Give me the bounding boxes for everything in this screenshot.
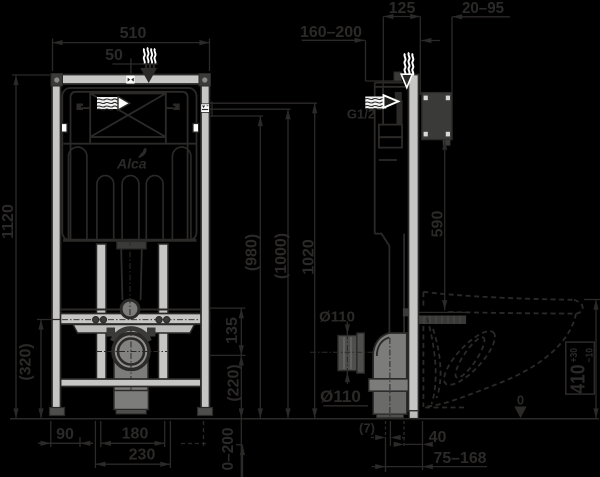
svg-text:+30: +30 — [569, 348, 580, 363]
svg-text:125: 125 — [389, 0, 416, 17]
svg-text:410: 410 — [568, 365, 590, 394]
svg-text:90: 90 — [56, 426, 74, 443]
svg-text:230: 230 — [129, 447, 156, 464]
svg-text:Ø110: Ø110 — [320, 387, 361, 406]
svg-text:−10: −10 — [585, 348, 596, 363]
svg-text:(320): (320) — [18, 343, 35, 380]
svg-text:180: 180 — [122, 426, 149, 443]
svg-text:1120: 1120 — [0, 204, 17, 239]
svg-text:Ø110: Ø110 — [319, 309, 355, 326]
svg-text:Alca: Alca — [116, 156, 147, 172]
svg-text:(220): (220) — [226, 364, 243, 401]
svg-text:160–200: 160–200 — [300, 24, 362, 41]
svg-text:40: 40 — [429, 429, 447, 446]
svg-text:50: 50 — [105, 47, 123, 64]
svg-text:0–200: 0–200 — [220, 427, 237, 470]
svg-text:(7): (7) — [359, 421, 375, 436]
svg-text:1020: 1020 — [301, 239, 318, 275]
svg-text:G1/2: G1/2 — [347, 107, 375, 122]
svg-text:510: 510 — [120, 25, 147, 42]
svg-text:135: 135 — [224, 317, 241, 344]
svg-text:75–168: 75–168 — [434, 450, 487, 467]
svg-text:(1000): (1000) — [273, 233, 290, 279]
svg-text:590: 590 — [430, 211, 447, 238]
svg-text:20–95: 20–95 — [462, 0, 504, 17]
svg-text:0: 0 — [517, 393, 524, 408]
svg-text:(980): (980) — [244, 234, 261, 271]
